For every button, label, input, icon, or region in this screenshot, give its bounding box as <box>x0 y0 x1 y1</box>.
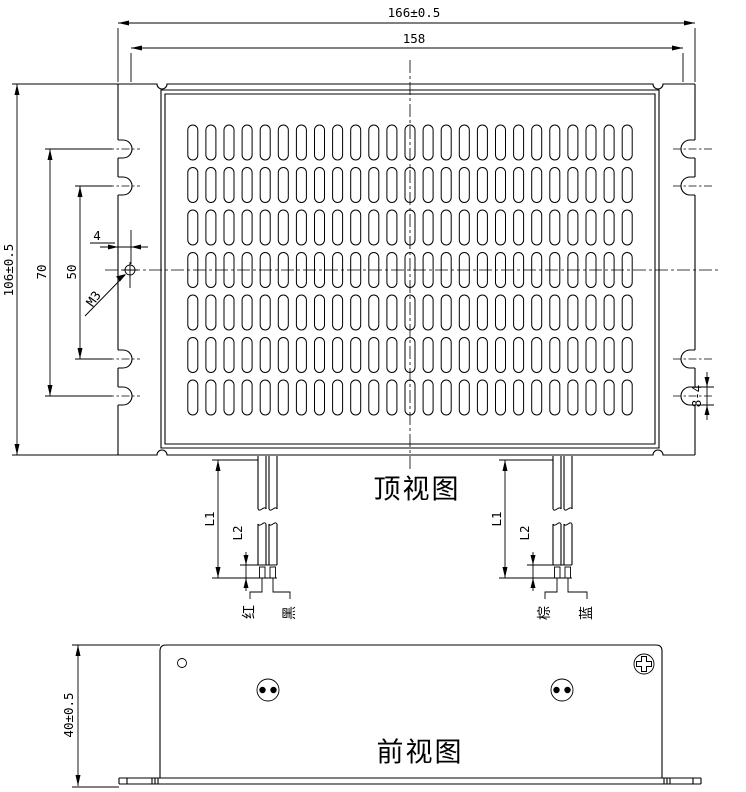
front-view-title: 前视图 <box>377 731 464 770</box>
dim-overall-height-label: 106±0.5 <box>3 244 16 297</box>
wire-color-blue-label: 蓝 <box>580 606 594 620</box>
wire-color-red-label: 红 <box>243 605 257 619</box>
dim-slot-span-width-label: 158 <box>403 33 426 46</box>
dim-slot-span-width <box>131 46 683 83</box>
dim-l2-left-label: L2 <box>232 525 245 540</box>
drawing-linework <box>0 0 746 792</box>
dim-overall-width-label: 166±0.5 <box>388 7 441 20</box>
wire-color-black-label: 黑 <box>283 606 297 620</box>
screw-head-icon <box>634 654 654 674</box>
dim-overall-width <box>118 21 695 83</box>
dim-front-height <box>72 645 160 787</box>
front-panel-hole <box>178 659 187 668</box>
dim-slot-size-label: 8-4 <box>691 385 704 408</box>
dim-l2-right-label: L2 <box>519 525 532 540</box>
mount-slots-right <box>681 140 695 405</box>
top-view-title: 顶视图 <box>374 468 461 507</box>
wire-color-brown-label: 棕 <box>538 606 552 620</box>
wire-grommet-right <box>551 679 573 701</box>
dim-l1-left-label: L1 <box>204 511 217 526</box>
dim-l1-right-label: L1 <box>491 511 504 526</box>
dim-hole-offset-label: 4 <box>93 230 101 243</box>
engineering-drawing-canvas: 166±0.5 158 106±0.5 70 50 4 M3 8-4 L1 L2… <box>0 0 746 792</box>
wire-grommet-left <box>257 679 279 701</box>
top-view <box>12 21 718 600</box>
dim-slot-span-outer-label: 70 <box>36 264 49 279</box>
dim-front-height-label: 40±0.5 <box>63 692 76 737</box>
top-view-flange-outline <box>118 84 695 455</box>
dim-slot-span-inner <box>75 186 112 359</box>
front-view-base-strip <box>119 778 701 784</box>
dim-slot-span-inner-label: 50 <box>66 264 79 279</box>
